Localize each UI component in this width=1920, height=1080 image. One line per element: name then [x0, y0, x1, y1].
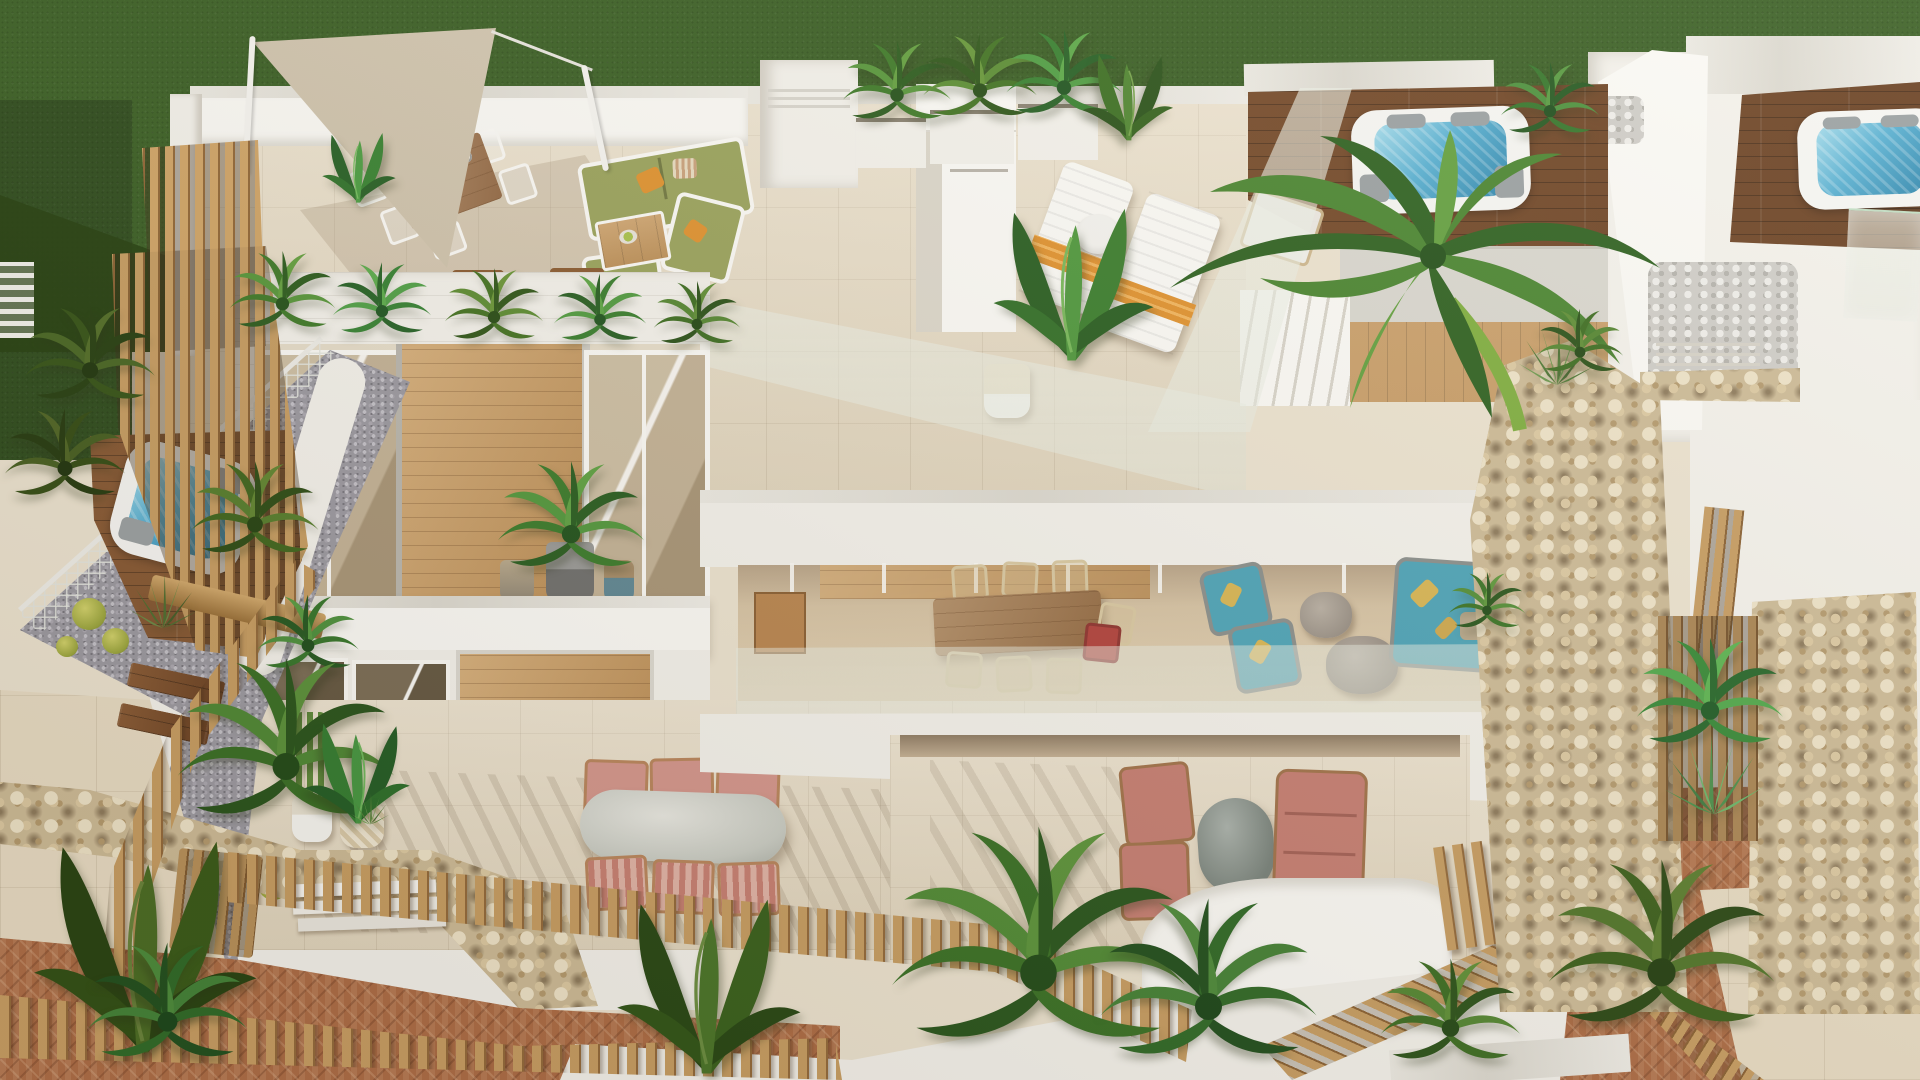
fruit-bowl: [618, 228, 638, 245]
yellow-pillow: [1409, 578, 1440, 609]
villa2-vent-slots: [1656, 336, 1760, 366]
slat-screen-between-pillars: [1658, 616, 1758, 841]
planter-box: [930, 110, 1014, 164]
striped-pillow: [672, 158, 697, 179]
yellow-pillow: [1433, 615, 1458, 641]
euphorbia-cactus: [296, 712, 326, 800]
terrace-back-frames: [790, 563, 1490, 593]
architectural-rendering: [0, 0, 1920, 1080]
sofa-cushion-line: [1283, 851, 1355, 857]
chimney-stack-small: [760, 60, 858, 188]
ground-terrace-back: [900, 735, 1460, 757]
balcony-pot-large: [546, 542, 594, 602]
villa2-jacuzzi-headrest: [1823, 116, 1861, 129]
pink-armchair: [1118, 761, 1196, 848]
center-upper-wall: [700, 503, 1520, 567]
cactus-pot-white: [292, 796, 332, 842]
villa2-jacuzzi-headrest: [1881, 114, 1919, 127]
orange-pillow: [683, 218, 710, 244]
palm-tree: [1150, 128, 1670, 458]
center-coping: [700, 490, 1520, 504]
cactus-pot-beige: [340, 804, 384, 848]
barrel-cactus: [72, 598, 106, 630]
window-mullion: [642, 355, 646, 607]
railing-bars: [1234, 898, 1318, 956]
barrel-cactus: [102, 628, 129, 654]
villa2-jacuzzi-water: [1816, 121, 1920, 197]
balcony-window-right: [584, 350, 710, 612]
jacuzzi-headrest: [1450, 111, 1490, 126]
yellow-pillow: [1219, 581, 1243, 608]
jacuzzi-headrest: [1386, 114, 1426, 129]
villa2-glass-panel: [1843, 208, 1920, 322]
left-railing-neighbor: [0, 262, 34, 338]
villa2-jacuzzi: [1796, 107, 1920, 210]
stone-coffee-table: [1300, 592, 1352, 638]
terrace-sideboard: [754, 592, 806, 654]
balcony-slab-coping: [252, 596, 710, 608]
planter-box: [1018, 104, 1098, 160]
lounger-side-table: [1076, 214, 1120, 254]
planter-box: [856, 118, 926, 168]
sofa-cushion-line: [1285, 811, 1357, 817]
chimney-small-vents: [768, 86, 850, 108]
barrel-cactus: [56, 636, 78, 657]
oval-stone-dining-table: [579, 788, 787, 865]
